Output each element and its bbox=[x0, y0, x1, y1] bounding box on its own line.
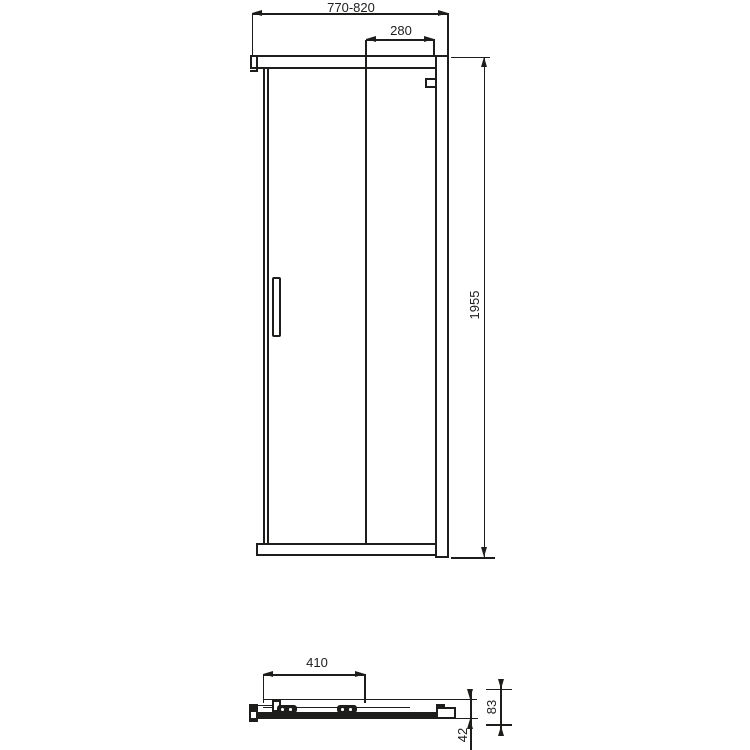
dim-depth-arrow-down bbox=[498, 679, 504, 689]
dim-height-ext-bottom bbox=[451, 557, 495, 559]
dim-offset-label: 42 bbox=[450, 722, 474, 748]
bottom-track-bar bbox=[256, 712, 437, 719]
wall-profile-right bbox=[435, 55, 449, 558]
door-handle bbox=[272, 277, 281, 337]
dim-panel-length-label: 410 bbox=[292, 656, 342, 669]
dim-depth-tick-top bbox=[486, 689, 512, 691]
dim-overall-width-arrow-left bbox=[252, 10, 262, 16]
technical-drawing: 770-820 280 1955 bbox=[0, 0, 750, 750]
dim-door-width-arrow-left bbox=[366, 36, 376, 42]
fixed-panel-edge-inner bbox=[267, 69, 269, 543]
sliding-panel-edge-line bbox=[263, 699, 477, 701]
roller-1-dot-b bbox=[289, 708, 292, 711]
dim-height-label: 1955 bbox=[460, 278, 488, 332]
dim-overall-width-ext-right bbox=[447, 13, 449, 55]
roller-carriage-2 bbox=[337, 705, 357, 713]
dim-overall-width-label: 770-820 bbox=[310, 1, 392, 14]
roller-2-dot-a bbox=[341, 708, 344, 711]
glass-divider-line bbox=[365, 40, 367, 543]
dim-height-arrow-up bbox=[481, 57, 487, 67]
dim-height-arrow-down bbox=[481, 547, 487, 557]
dim-door-width-label: 280 bbox=[376, 24, 426, 37]
dim-overall-width-ext-left bbox=[252, 13, 254, 55]
dim-offset-arrow-down bbox=[467, 689, 473, 699]
dim-depth-arrow-up bbox=[498, 726, 504, 736]
dim-panel-length-ext-left bbox=[263, 674, 265, 703]
header-end-cap-line bbox=[256, 56, 258, 71]
dim-depth-label: 83 bbox=[479, 694, 503, 720]
bottom-rail bbox=[256, 543, 437, 556]
roller-1-dot-a bbox=[281, 708, 284, 711]
roller-2-dot-b bbox=[349, 708, 352, 711]
roller-carriage-1 bbox=[277, 705, 297, 713]
dim-panel-length-arrow-left bbox=[263, 671, 273, 677]
left-end-bracket-hole bbox=[251, 712, 256, 718]
dim-panel-length-ext-right bbox=[364, 674, 366, 703]
header-rail bbox=[250, 55, 437, 69]
dim-panel-length-line bbox=[263, 674, 365, 676]
dim-door-width-ext-right bbox=[433, 39, 435, 57]
header-end-cap-bottom bbox=[250, 70, 258, 72]
fixed-panel-edge-outer bbox=[263, 69, 265, 543]
door-latch-clip bbox=[425, 78, 437, 88]
